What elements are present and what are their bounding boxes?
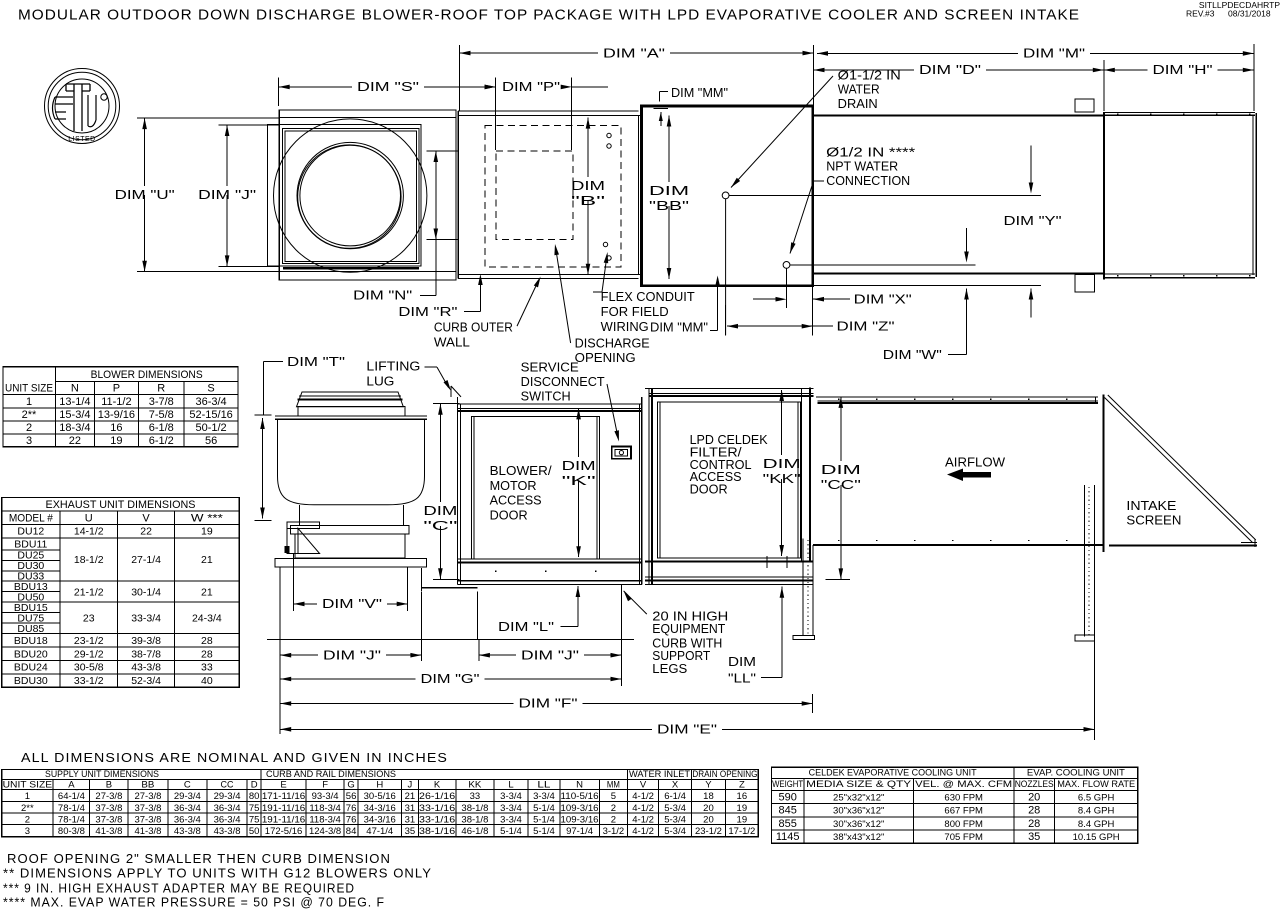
svg-text:"LL": "LL" — [728, 672, 756, 686]
svg-text:41-3/8: 41-3/8 — [95, 826, 122, 837]
svg-text:SCREEN: SCREEN — [1126, 514, 1181, 528]
svg-text:28: 28 — [201, 635, 213, 647]
svg-text:19: 19 — [201, 526, 213, 538]
svg-text:5-1/4: 5-1/4 — [533, 803, 555, 814]
svg-text:VEL. @ MAX. CFM: VEL. @ MAX. CFM — [915, 779, 1012, 790]
svg-text:31: 31 — [405, 815, 416, 826]
svg-text:109-3/16: 109-3/16 — [561, 803, 599, 814]
svg-text:DIM "Z": DIM "Z" — [837, 319, 895, 333]
svg-text:DIM: DIM — [728, 655, 756, 669]
svg-text:667 FPM: 667 FPM — [944, 806, 983, 817]
svg-text:6-1/4: 6-1/4 — [664, 791, 686, 802]
svg-text:78-1/4: 78-1/4 — [58, 815, 85, 826]
svg-text:40: 40 — [201, 675, 213, 687]
svg-text:50-1/2: 50-1/2 — [195, 422, 226, 434]
svg-text:34-3/16: 34-3/16 — [364, 803, 396, 814]
svg-text:6-1/8: 6-1/8 — [149, 422, 174, 434]
svg-text:36-3/4: 36-3/4 — [195, 396, 226, 408]
svg-text:46-1/8: 46-1/8 — [461, 826, 488, 837]
svg-text:47-1/4: 47-1/4 — [366, 826, 393, 837]
svg-text:BLOWER DIMENSIONS: BLOWER DIMENSIONS — [91, 369, 203, 381]
svg-text:BB: BB — [141, 780, 154, 791]
svg-text:191-11/16: 191-11/16 — [262, 803, 305, 814]
svg-text:Ø1/2 IN ****: Ø1/2 IN **** — [826, 145, 915, 159]
svg-text:1: 1 — [26, 396, 32, 408]
svg-text:37-3/8: 37-3/8 — [134, 803, 161, 814]
svg-text:H: H — [376, 780, 383, 791]
svg-text:33-3/4: 33-3/4 — [131, 612, 161, 624]
svg-text:EXHAUST UNIT DIMENSIONS: EXHAUST UNIT DIMENSIONS — [46, 499, 196, 511]
svg-text:3-1/2: 3-1/2 — [603, 826, 625, 837]
svg-text:NPT WATER: NPT WATER — [826, 160, 898, 174]
svg-text:SWITCH: SWITCH — [521, 390, 571, 404]
svg-text:DOOR: DOOR — [690, 483, 728, 497]
svg-text:18: 18 — [703, 791, 714, 802]
svg-text:37-3/8: 37-3/8 — [134, 815, 161, 826]
svg-text:5-3/4: 5-3/4 — [664, 826, 686, 837]
svg-text:8.4 GPH: 8.4 GPH — [1078, 819, 1115, 830]
svg-text:6-1/2: 6-1/2 — [149, 435, 174, 447]
svg-text:845: 845 — [778, 805, 796, 817]
svg-text:L: L — [508, 780, 513, 791]
svg-text:LL: LL — [537, 780, 550, 791]
svg-text:DIM: DIM — [571, 179, 605, 193]
svg-text:ROOF OPENING 2" SMALLER THEN C: ROOF OPENING 2" SMALLER THEN CURB DIMENS… — [7, 852, 391, 866]
svg-text:"KK": "KK" — [763, 472, 801, 486]
svg-text:**** MAX. EVAP WATER PRESSURE: **** MAX. EVAP WATER PRESSURE = 50 PSI @… — [3, 896, 385, 910]
svg-text:37-3/8: 37-3/8 — [95, 803, 122, 814]
svg-text:OPENING: OPENING — [575, 351, 636, 365]
svg-text:78-1/4: 78-1/4 — [58, 803, 85, 814]
svg-text:2**: 2** — [21, 803, 34, 814]
svg-text:191-11/16: 191-11/16 — [262, 815, 305, 826]
svg-text:5: 5 — [611, 791, 616, 802]
svg-text:4-1/2: 4-1/2 — [632, 803, 654, 814]
svg-text:DIM "M": DIM "M" — [1023, 47, 1085, 61]
svg-text:DU12: DU12 — [17, 526, 44, 538]
svg-text:630 FPM: 630 FPM — [944, 793, 983, 804]
svg-text:3-3/4: 3-3/4 — [500, 791, 522, 802]
svg-text:33-1/2: 33-1/2 — [74, 675, 104, 687]
svg-text:800 FPM: 800 FPM — [944, 819, 983, 830]
svg-text:28: 28 — [1028, 805, 1040, 817]
svg-text:35: 35 — [405, 826, 416, 837]
svg-text:DIM "D": DIM "D" — [919, 63, 981, 77]
svg-text:18-3/4: 18-3/4 — [59, 422, 90, 434]
svg-text:X: X — [672, 780, 679, 791]
svg-text:33-1/16: 33-1/16 — [419, 803, 455, 814]
svg-text:21: 21 — [201, 554, 213, 566]
svg-text:WEIGHT: WEIGHT — [772, 779, 803, 790]
svg-text:27-3/8: 27-3/8 — [134, 791, 161, 802]
svg-text:DISCHARGE: DISCHARGE — [575, 337, 650, 351]
svg-text:64-1/4: 64-1/4 — [58, 791, 85, 802]
svg-text:08/31/2018: 08/31/2018 — [1228, 9, 1271, 19]
svg-text:DRAIN: DRAIN — [838, 97, 878, 111]
svg-text:19: 19 — [737, 803, 748, 814]
svg-text:3-3/4: 3-3/4 — [500, 815, 522, 826]
svg-text:DIM "A": DIM "A" — [603, 46, 665, 60]
svg-text:590: 590 — [778, 792, 796, 804]
svg-text:29-3/4: 29-3/4 — [174, 791, 201, 802]
svg-text:LUG: LUG — [366, 374, 394, 388]
svg-text:F: F — [322, 780, 328, 791]
svg-text:38-7/8: 38-7/8 — [131, 648, 161, 660]
svg-text:29-1/2: 29-1/2 — [74, 648, 104, 660]
svg-text:23: 23 — [83, 612, 95, 624]
svg-text:ACCESS: ACCESS — [490, 494, 542, 508]
svg-text:20: 20 — [1028, 792, 1040, 804]
svg-text:MAX. FLOW RATE: MAX. FLOW RATE — [1057, 779, 1135, 790]
svg-text:LIFTING: LIFTING — [366, 360, 420, 374]
svg-text:97-1/4: 97-1/4 — [566, 826, 593, 837]
svg-text:SUPPLY UNIT DIMENSIONS: SUPPLY UNIT DIMENSIONS — [45, 769, 159, 780]
svg-text:28: 28 — [1028, 818, 1040, 830]
svg-text:5-1/4: 5-1/4 — [533, 826, 555, 837]
svg-text:DIM "P": DIM "P" — [502, 80, 560, 94]
svg-text:27-1/4: 27-1/4 — [131, 554, 161, 566]
svg-text:38-1/16: 38-1/16 — [419, 826, 455, 837]
svg-text:33: 33 — [201, 662, 213, 674]
svg-text:3: 3 — [26, 435, 32, 447]
svg-text:76: 76 — [346, 815, 357, 826]
svg-text:25"x32"x12": 25"x32"x12" — [833, 793, 884, 804]
svg-text:DIM "H": DIM "H" — [1153, 63, 1213, 77]
svg-text:R: R — [157, 382, 165, 394]
svg-text:36-3/4: 36-3/4 — [174, 803, 201, 814]
svg-text:13-1/4: 13-1/4 — [59, 396, 90, 408]
svg-text:AIRFLOW: AIRFLOW — [945, 456, 1005, 470]
svg-text:MM: MM — [607, 780, 620, 791]
svg-text:*** 9 IN. HIGH EXHAUST ADAPTER: *** 9 IN. HIGH EXHAUST ADAPTER MAY BE RE… — [3, 882, 355, 896]
svg-text:36-3/4: 36-3/4 — [214, 815, 241, 826]
svg-text:2: 2 — [611, 803, 616, 814]
svg-text:2: 2 — [26, 422, 32, 434]
svg-text:WATER INLET: WATER INLET — [629, 769, 690, 780]
svg-text:WALL: WALL — [434, 336, 470, 350]
svg-text:SUPPORT: SUPPORT — [652, 649, 710, 663]
svg-text:109-3/16: 109-3/16 — [561, 815, 599, 826]
svg-text:ALL DIMENSIONS ARE NOMINAL AND: ALL DIMENSIONS ARE NOMINAL AND GIVEN IN … — [21, 750, 448, 765]
svg-text:3-7/8: 3-7/8 — [149, 396, 174, 408]
svg-text:75: 75 — [249, 803, 260, 814]
svg-text:"CC": "CC" — [821, 478, 861, 492]
svg-text:DIM "MM": DIM "MM" — [650, 321, 708, 335]
svg-text:21-1/2: 21-1/2 — [74, 586, 104, 598]
svg-text:33: 33 — [470, 791, 481, 802]
svg-text:10.15 GPH: 10.15 GPH — [1073, 832, 1120, 843]
svg-text:56: 56 — [205, 435, 217, 447]
svg-text:BDU24: BDU24 — [14, 662, 48, 674]
svg-text:2: 2 — [611, 815, 616, 826]
svg-text:3-3/4: 3-3/4 — [533, 791, 555, 802]
svg-text:80: 80 — [249, 791, 260, 802]
svg-text:16: 16 — [737, 791, 748, 802]
svg-text:1: 1 — [25, 791, 30, 802]
svg-text:DIM: DIM — [562, 459, 596, 473]
svg-text:17-1/2: 17-1/2 — [728, 826, 755, 837]
svg-text:11-1/2: 11-1/2 — [101, 396, 131, 408]
svg-text:** DIMENSIONS APPLY TO UNITS W: ** DIMENSIONS APPLY TO UNITS WITH G12 BL… — [3, 867, 432, 881]
svg-text:DU85: DU85 — [17, 623, 44, 635]
svg-text:A: A — [68, 780, 75, 791]
svg-text:2: 2 — [25, 815, 30, 826]
svg-text:15-3/4: 15-3/4 — [59, 409, 90, 421]
svg-text:MEDIA SIZE & QTY: MEDIA SIZE & QTY — [806, 779, 912, 790]
svg-text:U: U — [85, 512, 93, 524]
svg-text:6.5 GPH: 6.5 GPH — [1078, 793, 1115, 804]
svg-text:NOZZLES: NOZZLES — [1015, 779, 1054, 790]
svg-text:43-3/8: 43-3/8 — [214, 826, 241, 837]
svg-text:118-3/4: 118-3/4 — [309, 815, 341, 826]
svg-text:E: E — [280, 780, 286, 791]
svg-text:G: G — [347, 780, 354, 791]
svg-text:43-3/8: 43-3/8 — [174, 826, 201, 837]
svg-text:34-3/16: 34-3/16 — [364, 815, 396, 826]
svg-text:705 FPM: 705 FPM — [944, 832, 983, 843]
svg-text:76: 76 — [346, 803, 357, 814]
svg-text:38-1/8: 38-1/8 — [461, 815, 488, 826]
svg-text:DIM "W": DIM "W" — [883, 348, 942, 362]
svg-text:FOR FIELD: FOR FIELD — [601, 305, 669, 319]
svg-text:CC: CC — [221, 780, 234, 791]
svg-text:DIM "X": DIM "X" — [854, 292, 912, 306]
svg-text:DIM "S": DIM "S" — [357, 80, 419, 94]
svg-text:31: 31 — [405, 803, 416, 814]
svg-text:30-5/16: 30-5/16 — [364, 791, 396, 802]
svg-text:56: 56 — [346, 791, 357, 802]
svg-text:LISTED: LISTED — [68, 136, 96, 143]
svg-text:BDU18: BDU18 — [14, 635, 48, 647]
svg-text:8.4 GPH: 8.4 GPH — [1078, 806, 1115, 817]
svg-text:23-1/2: 23-1/2 — [695, 826, 722, 837]
svg-text:41-3/8: 41-3/8 — [134, 826, 161, 837]
svg-text:52-15/16: 52-15/16 — [189, 409, 232, 421]
svg-text:36-3/4: 36-3/4 — [214, 803, 241, 814]
svg-text:DIM "R": DIM "R" — [398, 305, 457, 319]
svg-text:30-5/8: 30-5/8 — [74, 662, 104, 674]
svg-text:DIM "U": DIM "U" — [115, 188, 175, 202]
svg-text:CURB AND RAIL DIMENSIONS: CURB AND RAIL DIMENSIONS — [266, 769, 396, 780]
svg-text:21: 21 — [201, 586, 213, 598]
svg-text:BDU30: BDU30 — [14, 675, 48, 687]
svg-text:855: 855 — [778, 818, 796, 830]
svg-text:KK: KK — [468, 780, 482, 791]
svg-text:"K": "K" — [562, 474, 596, 488]
svg-text:30"x36"x12": 30"x36"x12" — [833, 806, 884, 817]
svg-text:INTAKE: INTAKE — [1126, 499, 1176, 513]
svg-text:84: 84 — [346, 826, 357, 837]
svg-text:75: 75 — [249, 815, 260, 826]
svg-text:DIM "T": DIM "T" — [287, 355, 345, 369]
svg-text:DIM "J": DIM "J" — [521, 648, 579, 662]
svg-text:23-1/2: 23-1/2 — [74, 635, 104, 647]
svg-text:MODEL #: MODEL # — [9, 512, 54, 524]
svg-text:DIM: DIM — [423, 504, 457, 518]
svg-text:5-3/4: 5-3/4 — [664, 803, 686, 814]
svg-text:DIM "MM": DIM "MM" — [671, 86, 728, 100]
svg-text:EVAP. COOLING UNIT: EVAP. COOLING UNIT — [1027, 767, 1125, 778]
svg-text:21: 21 — [405, 791, 416, 802]
svg-text:UNIT SIZE: UNIT SIZE — [3, 780, 53, 791]
svg-text:16: 16 — [110, 422, 122, 434]
svg-text:39-3/8: 39-3/8 — [131, 635, 161, 647]
svg-text:DIM "L": DIM "L" — [498, 620, 554, 634]
svg-text:30-1/4: 30-1/4 — [131, 586, 161, 598]
svg-text:38-1/8: 38-1/8 — [461, 803, 488, 814]
svg-text:1145: 1145 — [776, 831, 800, 843]
svg-text:CONNECTION: CONNECTION — [826, 174, 910, 188]
svg-text:4-1/2: 4-1/2 — [632, 815, 654, 826]
svg-text:110-5/16: 110-5/16 — [561, 791, 599, 802]
svg-text:DIM "V": DIM "V" — [322, 597, 382, 611]
svg-text:43-3/8: 43-3/8 — [131, 662, 161, 674]
svg-text:DOOR: DOOR — [490, 508, 528, 522]
svg-text:MODULAR OUTDOOR DOWN DISCHARGE: MODULAR OUTDOOR DOWN DISCHARGE BLOWER-RO… — [18, 7, 1080, 24]
svg-text:B: B — [106, 780, 112, 791]
svg-text:FLEX CONDUIT: FLEX CONDUIT — [601, 290, 695, 304]
svg-text:MOTOR: MOTOR — [490, 479, 537, 493]
svg-text:93-3/4: 93-3/4 — [312, 791, 339, 802]
svg-text:5-1/4: 5-1/4 — [500, 826, 522, 837]
svg-text:BLOWER/: BLOWER/ — [490, 464, 553, 478]
svg-text:33-1/16: 33-1/16 — [419, 815, 455, 826]
svg-text:20: 20 — [703, 815, 714, 826]
svg-text:REV.#3: REV.#3 — [1186, 9, 1215, 19]
svg-text:19: 19 — [110, 435, 122, 447]
svg-text:22: 22 — [69, 435, 81, 447]
svg-text:"B": "B" — [571, 194, 605, 208]
svg-text:124-3/8: 124-3/8 — [309, 826, 341, 837]
svg-text:80-3/8: 80-3/8 — [58, 826, 85, 837]
svg-text:P: P — [113, 382, 120, 394]
svg-text:20: 20 — [703, 803, 714, 814]
svg-text:BDU20: BDU20 — [14, 648, 48, 660]
svg-text:WIRING: WIRING — [601, 320, 649, 334]
svg-text:V: V — [142, 512, 150, 524]
svg-text:18-1/2: 18-1/2 — [74, 554, 104, 566]
svg-text:DIM "Y": DIM "Y" — [1004, 214, 1062, 228]
svg-text:"BB": "BB" — [649, 199, 689, 213]
svg-text:Y: Y — [705, 780, 712, 791]
svg-text:LEGS: LEGS — [652, 662, 687, 676]
svg-text:50: 50 — [249, 826, 260, 837]
svg-text:DISCONNECT: DISCONNECT — [521, 375, 605, 389]
svg-text:2**: 2** — [22, 409, 37, 421]
svg-text:3: 3 — [25, 826, 30, 837]
svg-text:DIM "G": DIM "G" — [421, 672, 480, 686]
svg-text:C: C — [184, 780, 191, 791]
svg-text:W ***: W *** — [191, 512, 224, 524]
svg-text:CURB OUTER: CURB OUTER — [434, 321, 513, 335]
svg-text:36-3/4: 36-3/4 — [174, 815, 201, 826]
svg-text:DIM "N": DIM "N" — [353, 289, 412, 303]
svg-text:DIM "F": DIM "F" — [519, 697, 578, 711]
svg-text:K: K — [434, 780, 441, 791]
svg-text:5-3/4: 5-3/4 — [664, 815, 686, 826]
svg-text:3-3/4: 3-3/4 — [500, 803, 522, 814]
svg-text:DIM "J": DIM "J" — [198, 188, 256, 202]
svg-text:BDU11: BDU11 — [14, 539, 47, 551]
svg-text:118-3/4: 118-3/4 — [309, 803, 341, 814]
svg-text:SERVICE: SERVICE — [521, 360, 579, 374]
svg-text:35: 35 — [1028, 831, 1040, 843]
svg-text:7-5/8: 7-5/8 — [149, 409, 174, 421]
svg-text:DIM: DIM — [763, 457, 801, 471]
svg-text:37-3/8: 37-3/8 — [95, 815, 122, 826]
svg-text:5-1/4: 5-1/4 — [533, 815, 555, 826]
svg-text:DRAIN OPENING: DRAIN OPENING — [692, 769, 757, 780]
svg-text:UNIT SIZE: UNIT SIZE — [5, 382, 53, 394]
svg-text:N: N — [576, 780, 583, 791]
svg-text:4-1/2: 4-1/2 — [632, 791, 654, 802]
svg-text:4-1/2: 4-1/2 — [632, 826, 654, 837]
svg-text:52-3/4: 52-3/4 — [131, 675, 161, 687]
svg-text:J: J — [408, 780, 413, 791]
svg-text:38"x43"x12": 38"x43"x12" — [833, 832, 884, 843]
svg-text:Z: Z — [739, 780, 745, 791]
svg-text:26-1/16: 26-1/16 — [419, 791, 455, 802]
svg-text:28: 28 — [201, 648, 213, 660]
svg-text:14-1/2: 14-1/2 — [74, 526, 104, 538]
svg-text:DIM "J": DIM "J" — [323, 648, 381, 662]
svg-text:D: D — [251, 780, 258, 791]
svg-text:22: 22 — [140, 526, 152, 538]
svg-text:172-5/16: 172-5/16 — [265, 826, 303, 837]
svg-text:DIM: DIM — [649, 184, 689, 198]
svg-text:DIM: DIM — [821, 463, 861, 477]
svg-text:171-11/16: 171-11/16 — [262, 791, 305, 802]
svg-text:30"x36"x12": 30"x36"x12" — [833, 819, 884, 830]
svg-text:29-3/4: 29-3/4 — [214, 791, 241, 802]
svg-text:S: S — [207, 382, 214, 394]
svg-text:DIM "E": DIM "E" — [657, 723, 717, 737]
svg-text:WATER: WATER — [838, 83, 880, 97]
svg-text:"C": "C" — [423, 519, 457, 533]
svg-text:24-3/4: 24-3/4 — [192, 612, 222, 624]
svg-text:CELDEK EVAPORATIVE COOLING UNI: CELDEK EVAPORATIVE COOLING UNIT — [809, 767, 977, 778]
svg-text:V: V — [640, 780, 647, 791]
svg-text:N: N — [71, 382, 79, 394]
svg-text:EQUIPMENT: EQUIPMENT — [652, 622, 725, 636]
svg-text:19: 19 — [737, 815, 748, 826]
svg-text:27-3/8: 27-3/8 — [95, 791, 122, 802]
svg-text:13-9/16: 13-9/16 — [98, 409, 135, 421]
